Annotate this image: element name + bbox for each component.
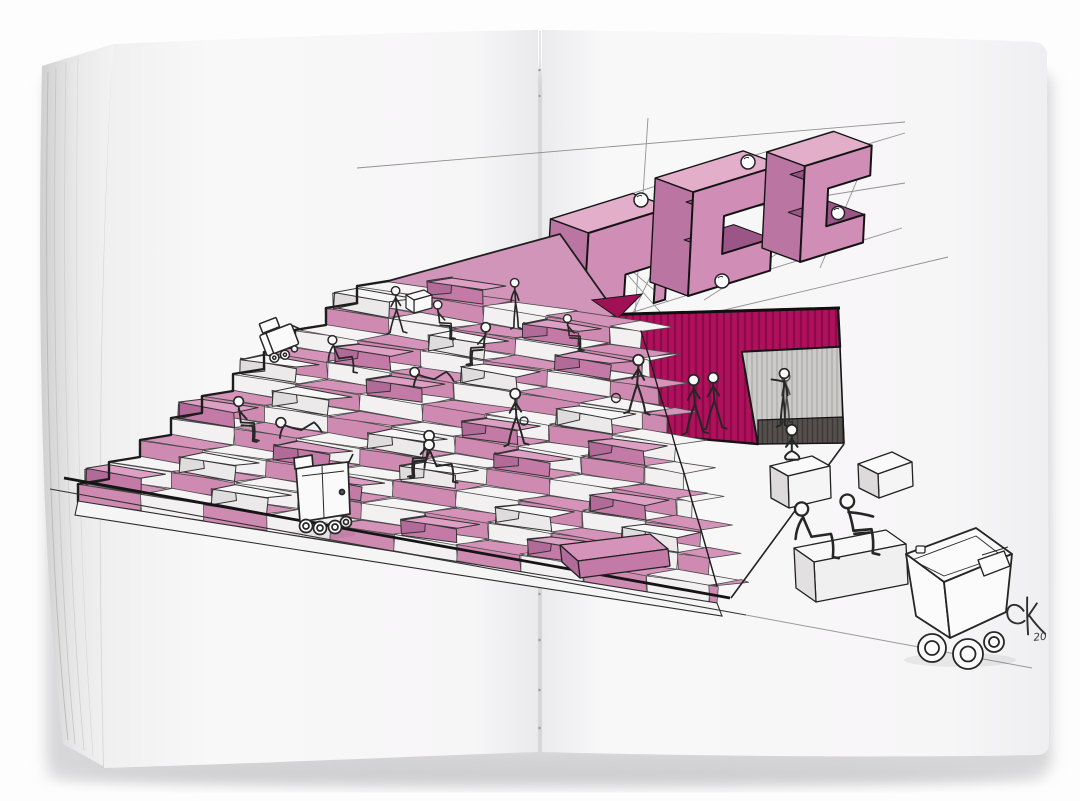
box-seat-small bbox=[770, 456, 831, 508]
doorway-bench bbox=[758, 417, 844, 444]
signature-year: 20 bbox=[1033, 631, 1048, 644]
sketchbook-photo: Open stitched sketchbook spread with a h… bbox=[0, 0, 1080, 801]
screenshot-root: Open stitched sketchbook spread with a h… bbox=[0, 0, 1080, 801]
cup-in-hand bbox=[916, 546, 925, 553]
crate bbox=[406, 290, 432, 313]
